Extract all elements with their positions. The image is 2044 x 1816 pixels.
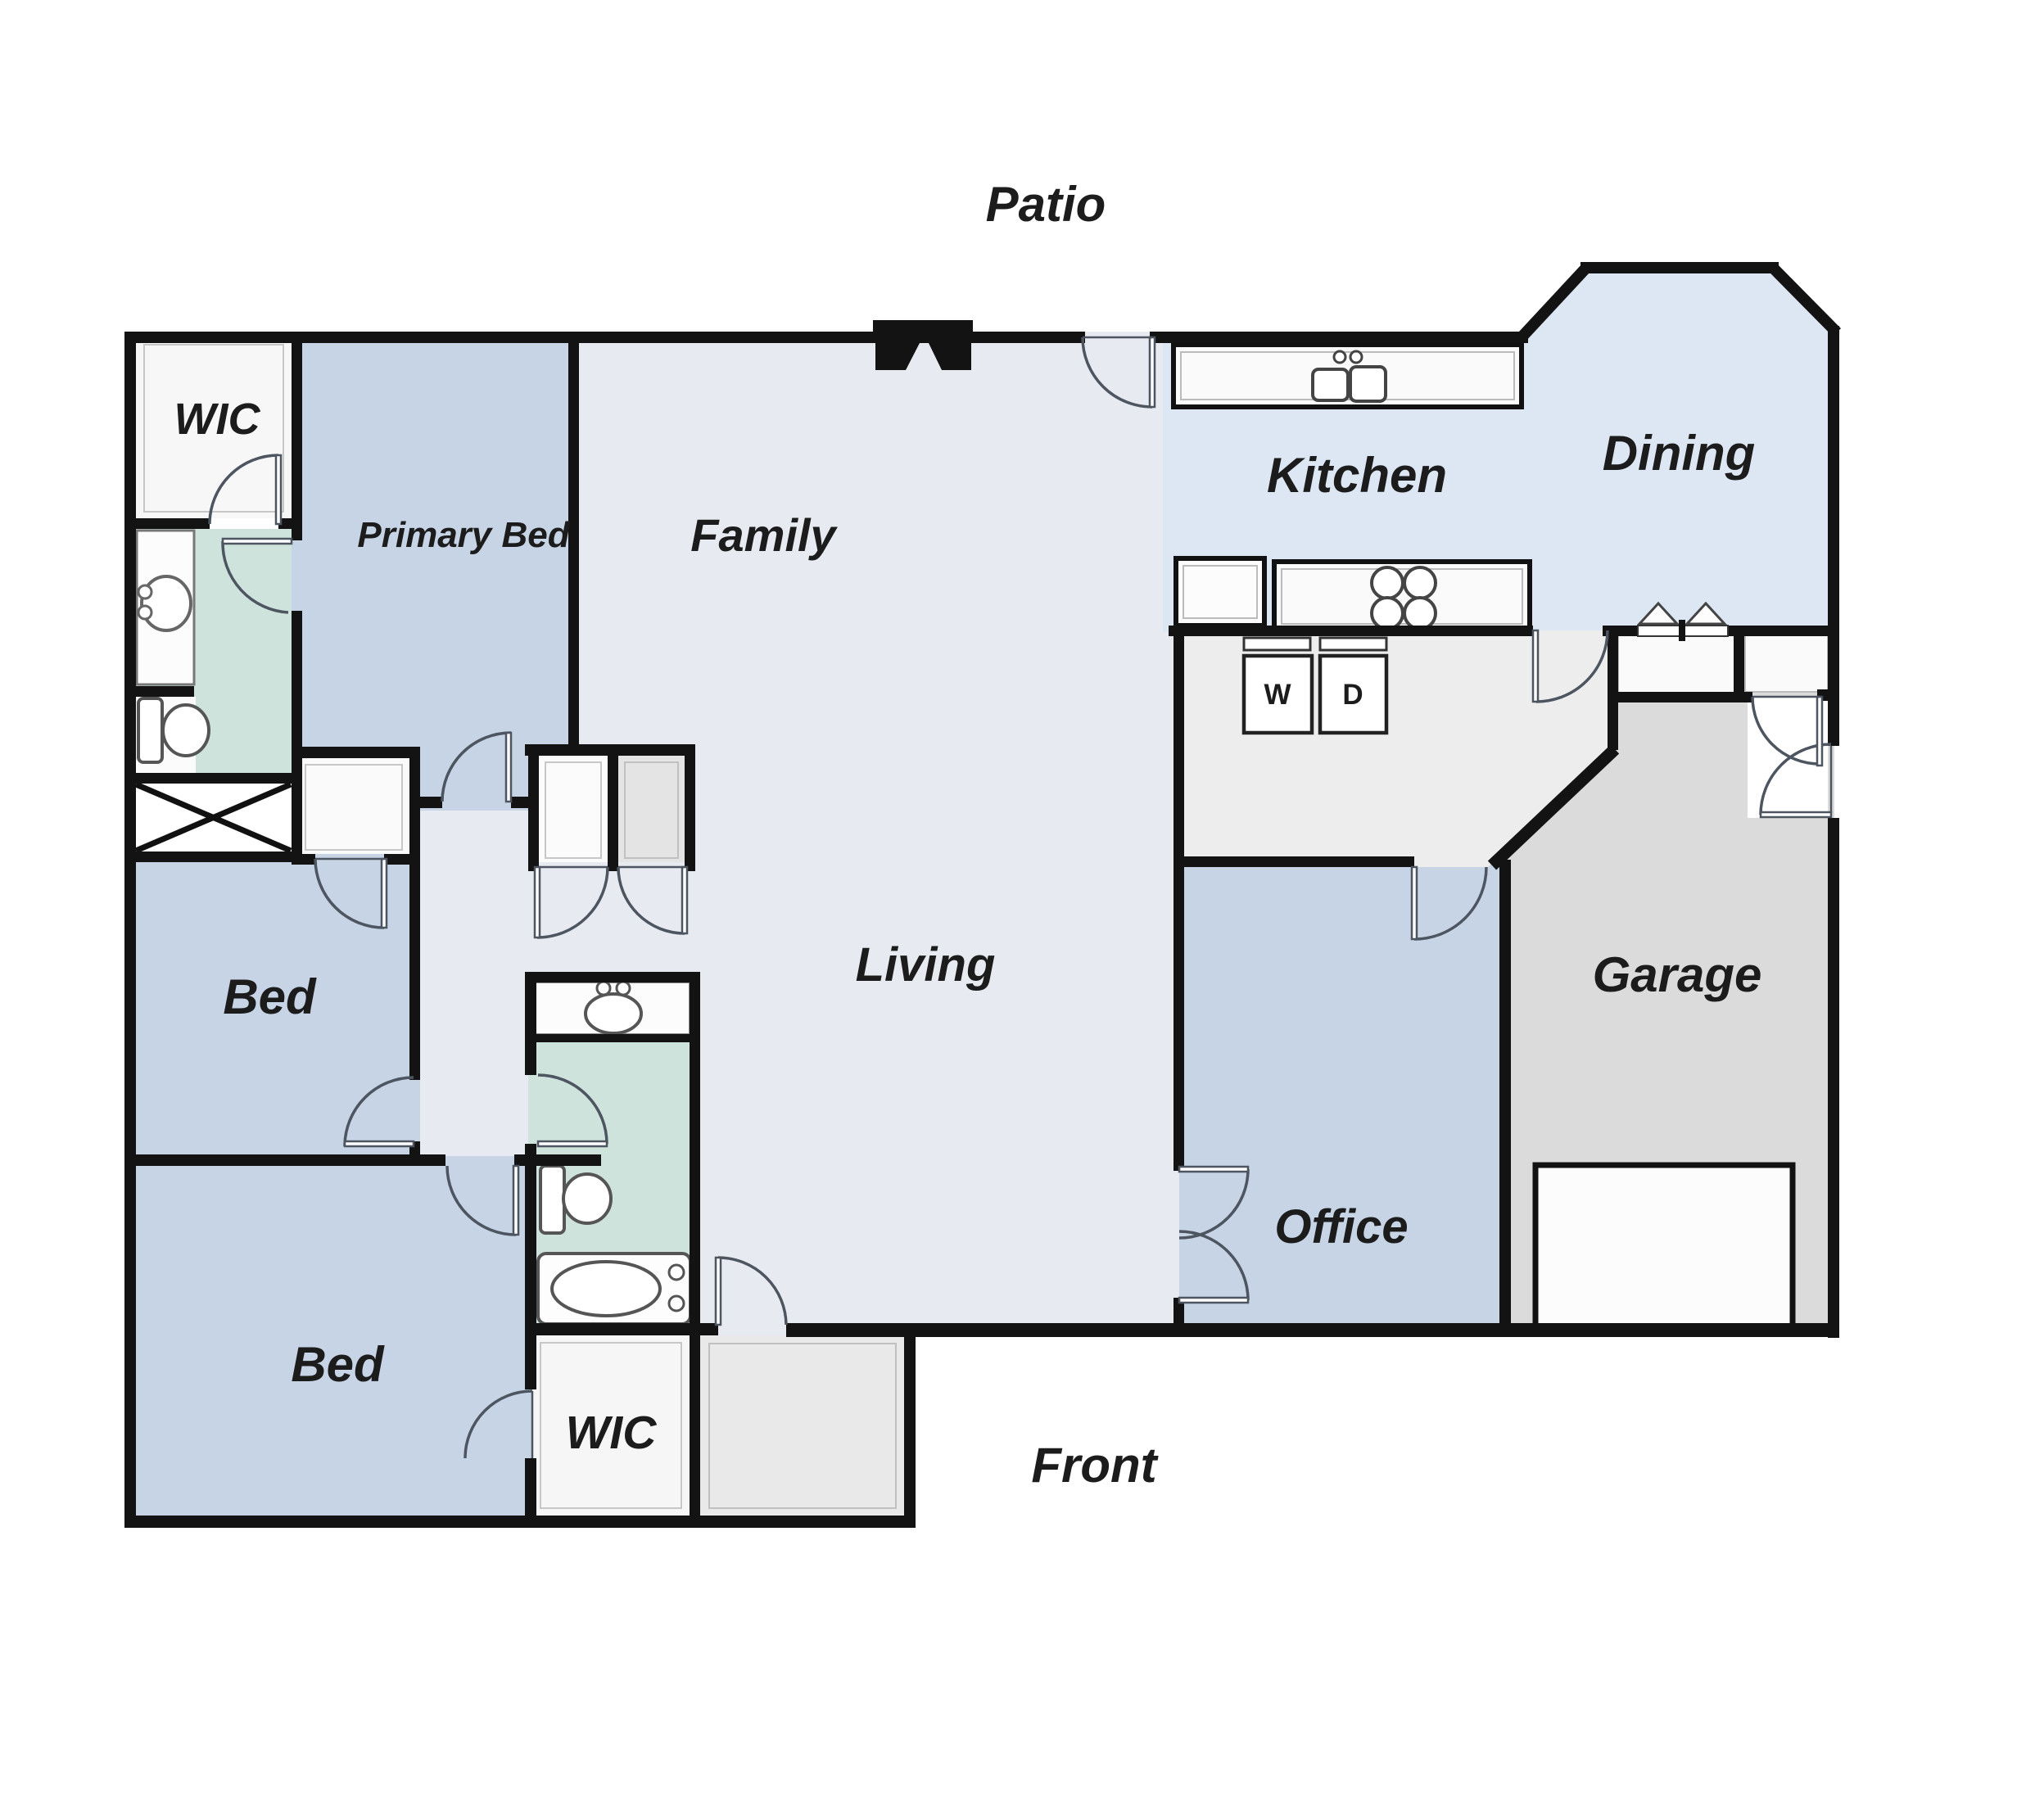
svg-text:Kitchen: Kitchen <box>1267 448 1447 503</box>
svg-text:Family: Family <box>690 509 838 561</box>
svg-text:WIC: WIC <box>174 395 261 444</box>
svg-text:Dining: Dining <box>1603 426 1756 481</box>
svg-text:Front: Front <box>1031 1438 1159 1493</box>
svg-text:W: W <box>1264 679 1291 711</box>
svg-text:Bed: Bed <box>291 1337 385 1392</box>
svg-text:Garage: Garage <box>1593 947 1762 1002</box>
svg-text:D: D <box>1342 679 1363 711</box>
svg-text:WIC: WIC <box>566 1407 658 1459</box>
svg-text:Primary Bed: Primary Bed <box>357 515 570 555</box>
svg-text:Living: Living <box>856 938 996 992</box>
svg-text:Office: Office <box>1274 1200 1408 1254</box>
svg-text:Patio: Patio <box>986 177 1106 232</box>
svg-text:Bed: Bed <box>223 969 317 1024</box>
